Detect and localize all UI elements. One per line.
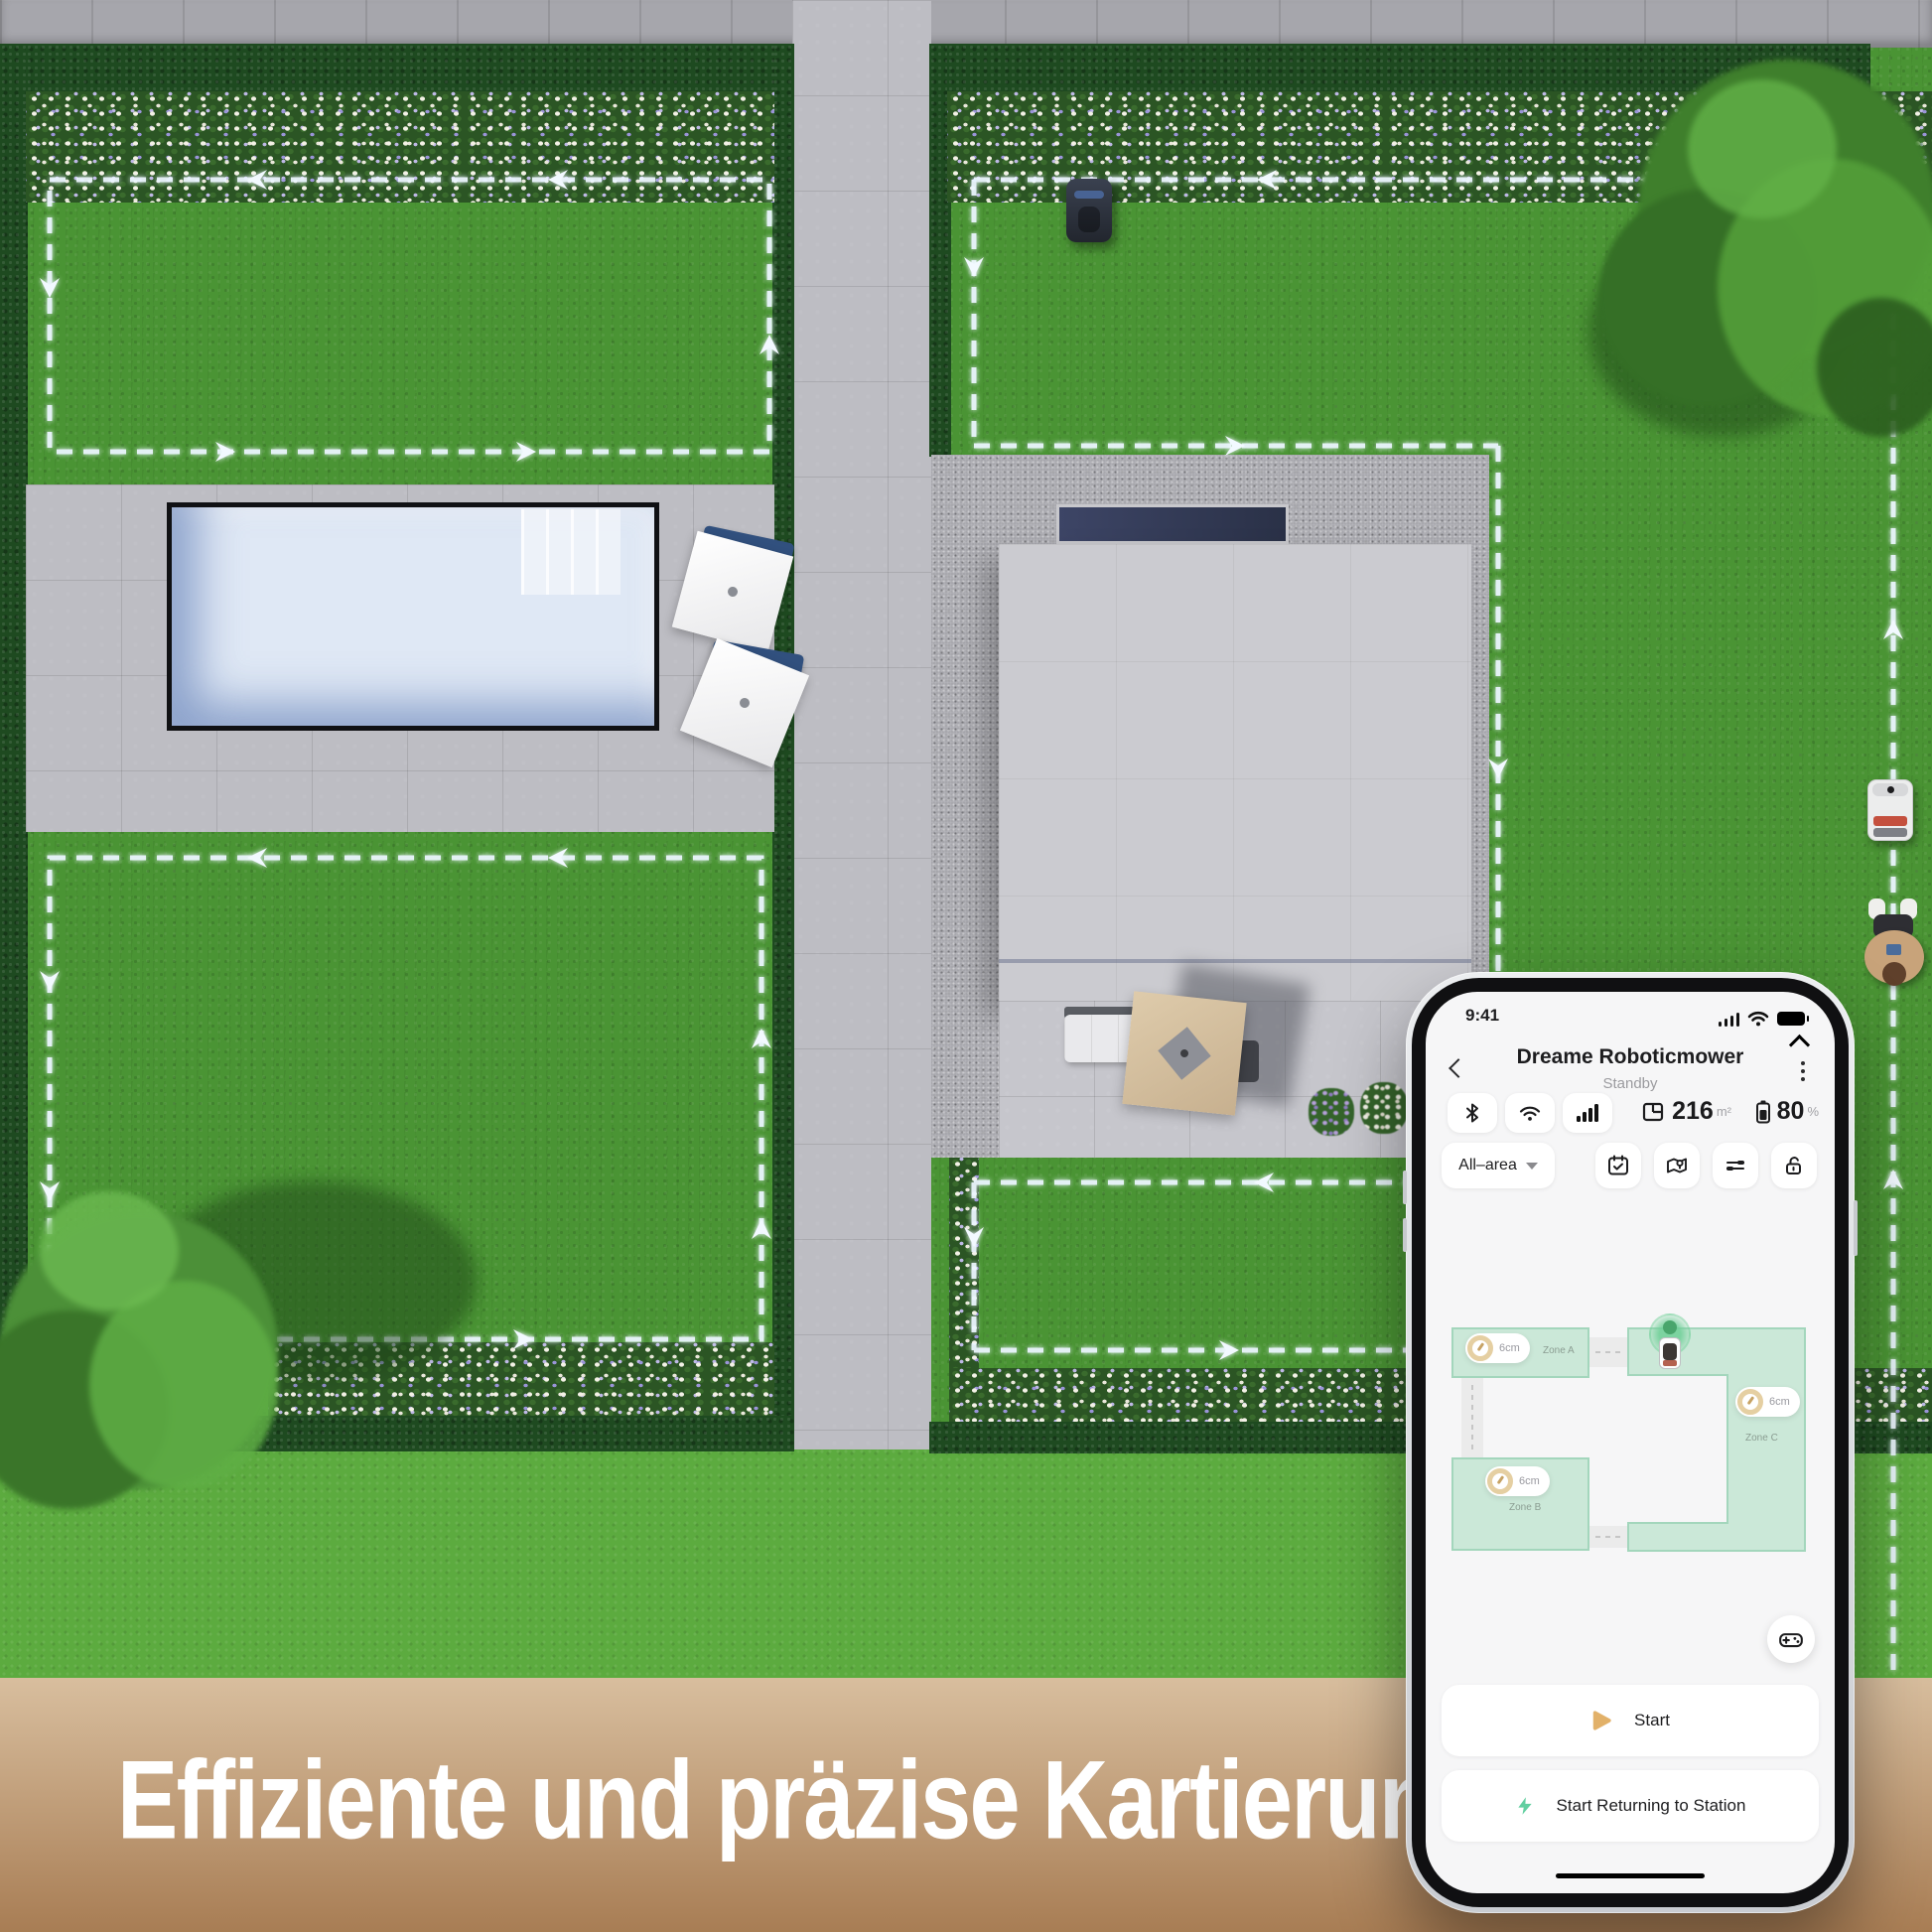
cutting-height-dial-icon [1467,1335,1493,1361]
gamepad-icon [1778,1626,1804,1652]
return-to-station-button[interactable]: Start Returning to Station [1442,1770,1819,1842]
volume-down-button [1403,1218,1407,1252]
remote-control-button[interactable] [1767,1615,1815,1663]
cutting-height-dial-icon [1737,1389,1763,1415]
return-label: Start Returning to Station [1557,1796,1746,1816]
tree-top-right [1579,40,1932,516]
phone-device: 9:41 Dreame Roboticmower Standby [1406,972,1855,1913]
zone-b-badge[interactable]: 6cm [1485,1466,1550,1496]
zone-c-region [1628,1328,1805,1551]
zone-a-cut-height: 6cm [1499,1342,1520,1354]
charging-dock [1867,779,1913,841]
banner-title: Effiziente und präzise Kartierung [117,1735,1487,1863]
home-indicator[interactable] [1556,1873,1705,1878]
tree-bottom-left [0,1152,328,1569]
zone-b-label: Zone B [1509,1502,1541,1513]
zone-a-badge[interactable]: 6cm [1465,1333,1530,1363]
play-icon [1590,1709,1612,1732]
app-screen: 9:41 Dreame Roboticmower Standby [1426,992,1835,1893]
zone-c-badge[interactable]: 6cm [1735,1387,1800,1417]
start-label: Start [1634,1711,1670,1730]
volume-up-button [1403,1171,1407,1204]
robot-mower [1066,179,1112,242]
lightning-icon [1515,1794,1535,1818]
scene: Effiziente und präzise Kartierung 9:41 [0,0,1932,1932]
zone-c-label: Zone C [1745,1433,1778,1444]
power-button [1854,1200,1858,1256]
person [1863,898,1926,996]
station-marker[interactable] [1656,1321,1684,1369]
start-button[interactable]: Start [1442,1685,1819,1756]
zone-b-cut-height: 6cm [1519,1475,1540,1487]
zone-c-cut-height: 6cm [1769,1396,1790,1408]
zone-a-label: Zone A [1543,1345,1575,1356]
cutting-height-dial-icon [1487,1468,1513,1494]
